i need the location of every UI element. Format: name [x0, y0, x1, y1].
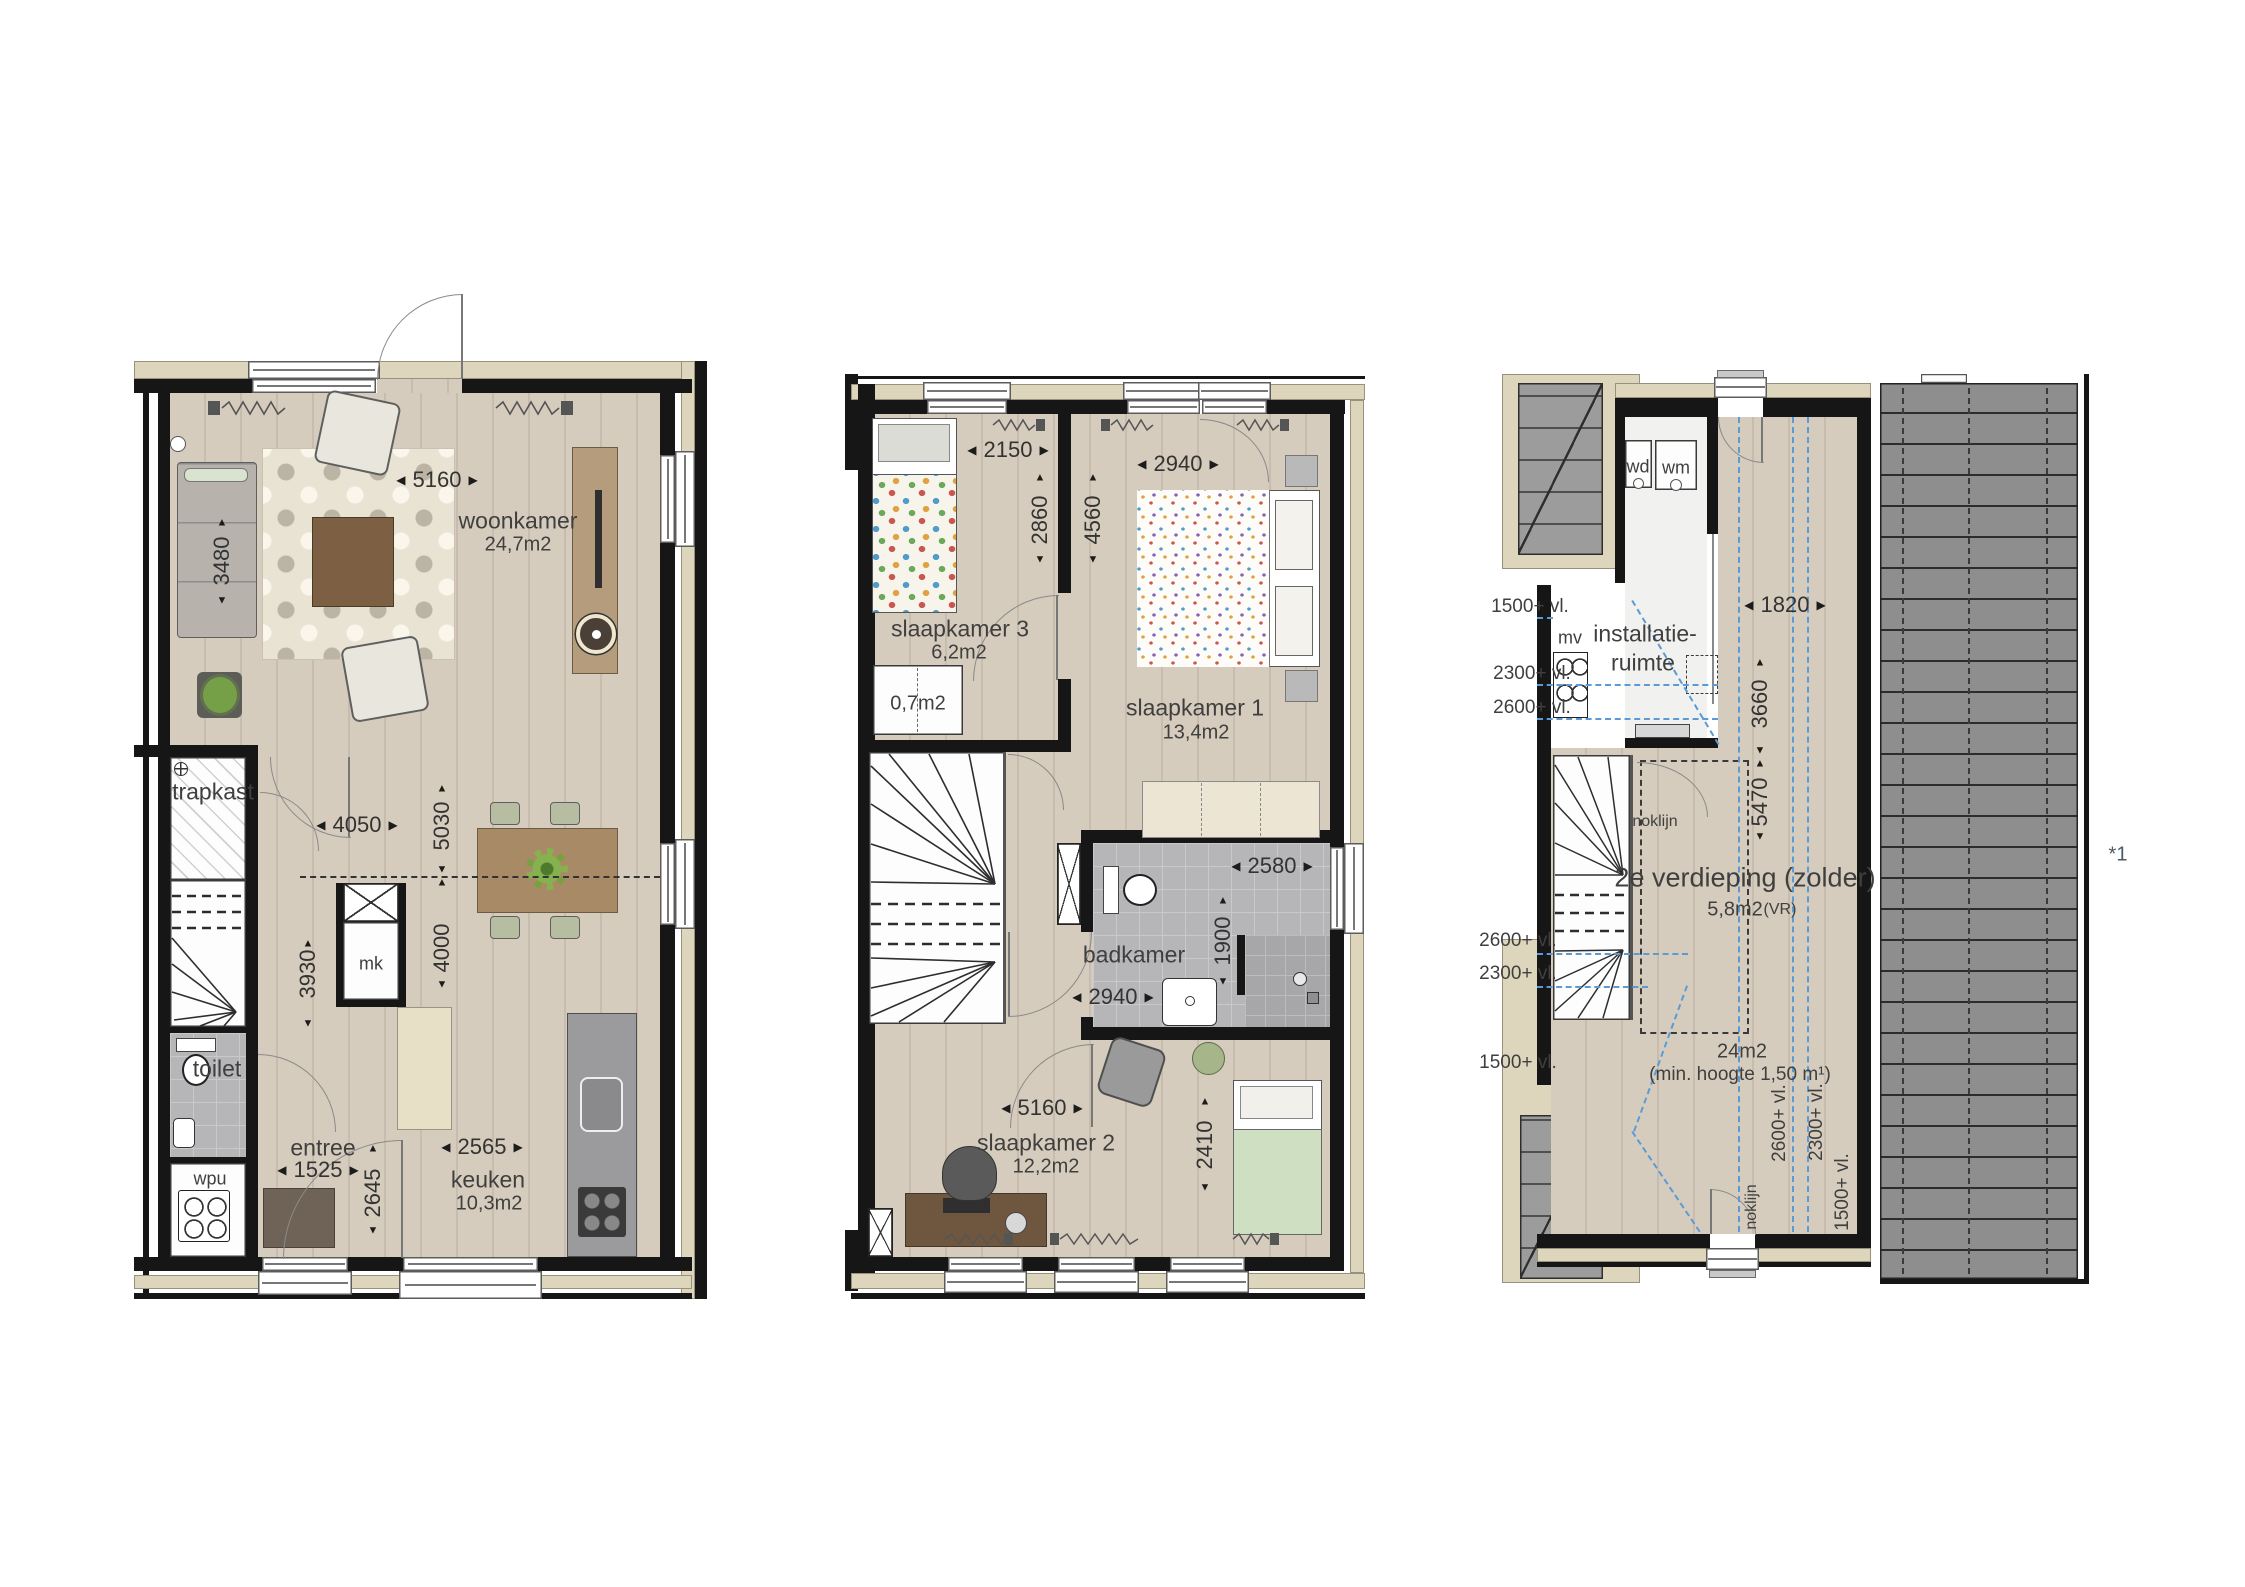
- label-2600-rot: 2600+ vl.: [1769, 1084, 1791, 1162]
- window-top-2: [1127, 400, 1200, 414]
- wall-top-a: [875, 400, 927, 414]
- wall-install-right: [1707, 417, 1718, 534]
- label-trapkast: trapkast: [172, 779, 254, 806]
- party-wall-left: [1537, 585, 1551, 1085]
- radiator-icon: [1101, 418, 1153, 432]
- wall-right-a: [1330, 400, 1344, 847]
- kitchen-sink: [580, 1077, 623, 1132]
- entree-door-bottom: [403, 1257, 538, 1271]
- arrow-down-icon: ▼: [217, 596, 228, 607]
- label-woonkamer-area: 24,7m2: [485, 534, 552, 557]
- wardrobe: [1142, 781, 1320, 838]
- bed-sk3-pillow: [878, 424, 950, 462]
- label-keuken-area: 10,3m2: [456, 1193, 523, 1216]
- tv: [595, 490, 602, 588]
- wall-mk-bottom: [343, 1000, 406, 1007]
- label-wm: wm: [1662, 458, 1690, 479]
- dim-attic-width: ◀1820▶: [1744, 592, 1825, 618]
- nightstand-1: [1285, 455, 1318, 487]
- wall-top-b: [1763, 398, 1871, 417]
- wd-circle: [1633, 478, 1644, 489]
- boiler-outline: [1686, 655, 1718, 694]
- dim-sk1-height: 4560: [1080, 496, 1106, 545]
- label-2300-rot: 2300+ vl.: [1806, 1083, 1828, 1161]
- sk2-door-leaf: [1091, 1044, 1093, 1127]
- outer-line-bottom: [1537, 1262, 1871, 1267]
- washbasin-drain: [1185, 996, 1195, 1006]
- wall-mk-right: [399, 883, 406, 1007]
- wall-sk3-hall: [858, 740, 1071, 752]
- arrow-up-icon: ▲: [1755, 759, 1766, 770]
- bed-sk2-pillow: [1240, 1086, 1313, 1119]
- floorplan-sheet: { "icons": { "arrow_left": "◀", "arrow_r…: [0, 0, 2245, 1587]
- dim-sk3-height: 2860: [1027, 496, 1053, 545]
- radiator-icon: [945, 1232, 1013, 1246]
- label-1500-top: 1500+ vl.: [1491, 596, 1569, 618]
- toilet-cistern: [1103, 866, 1119, 914]
- wall-left: [158, 379, 170, 1271]
- roof-dash-1: [1902, 388, 1904, 1274]
- wall-bottom-b: [1023, 1257, 1058, 1271]
- radiator-icon: [1237, 418, 1289, 432]
- label-zolder: 2e verdieping (zolder): [1614, 863, 1875, 894]
- label-toilet: toilet: [193, 1056, 242, 1083]
- window-bottom-2-frame: [1054, 1271, 1139, 1293]
- window-bottom-3: [1170, 1257, 1245, 1271]
- coffee-table: [312, 517, 394, 607]
- arrow-up-icon: ▲: [217, 518, 228, 529]
- bed-sk2-duvet: [1233, 1129, 1322, 1235]
- kitchen-island: [397, 1007, 452, 1130]
- terrace-door-arc: [377, 294, 463, 380]
- arrow-up-icon: ▲: [437, 784, 448, 795]
- label-keuken: keuken: [451, 1167, 525, 1194]
- window-bottom-1: [262, 1257, 348, 1271]
- label-mk: mk: [359, 954, 383, 975]
- table-plant: [526, 848, 568, 890]
- wall-bottom-c: [1135, 1257, 1170, 1271]
- plan-first-floor: ◀2150▶ ◀2940▶ ◀2580▶ ◀2940▶ ◀5160▶ ▲ 286…: [845, 374, 1405, 1314]
- label-1500-mid: 1500+ vl.: [1479, 1052, 1557, 1074]
- dim-dining-lower: 4000: [429, 924, 455, 973]
- roof-block-top-left: [1518, 383, 1603, 555]
- shower-wall-stub: [1237, 935, 1245, 995]
- arrow-up-icon: ▲: [1200, 1097, 1211, 1108]
- label-noklijn-rot: noklijn: [1743, 1184, 1761, 1229]
- label-wd: wd: [1626, 457, 1649, 478]
- window-top-1-frame: [923, 382, 1011, 400]
- front-door-leaf: [401, 1140, 403, 1258]
- arrow-down-icon: ▼: [1200, 1183, 1211, 1194]
- bed-sk1-pillow-2: [1275, 586, 1313, 656]
- headroom-line-v1: [1738, 417, 1740, 1232]
- wall-bottom-b: [1755, 1234, 1871, 1248]
- outer-line-top: [851, 376, 1365, 379]
- label-floor-area: 24m2: [1717, 1041, 1767, 1064]
- label-entree: entree: [290, 1135, 355, 1162]
- dim-bad-height: 1900: [1210, 917, 1236, 966]
- window-right-1-frame: [675, 451, 695, 547]
- arrow-down-icon: ▼: [437, 865, 448, 876]
- dim-hall-height: 3930: [295, 950, 321, 999]
- radiator-icon: [1050, 1232, 1138, 1246]
- dim-dining-upper: 5030: [429, 802, 455, 851]
- arrow-down-icon: ▼: [437, 980, 448, 991]
- nightstand-2: [1285, 670, 1318, 702]
- dashed-axis-line: [300, 876, 660, 878]
- arrow-up-icon: ▲: [1088, 473, 1099, 484]
- arrow-right-icon: ▶: [468, 473, 477, 487]
- window-right-badkamer-frame: [1344, 843, 1364, 934]
- arrow-up-icon: ▲: [437, 878, 448, 889]
- arrow-up-icon: ▲: [1035, 473, 1046, 484]
- dining-chair-2: [550, 802, 580, 825]
- dim-attic-lower: 5470: [1747, 778, 1773, 827]
- bed-sk3-duvet: [872, 474, 957, 613]
- label-installatie-1: installatie-: [1593, 621, 1697, 648]
- dim-living-width: ◀5160▶: [396, 467, 477, 493]
- arrow-down-icon: ▼: [1035, 555, 1046, 566]
- label-badkamer: badkamer: [1083, 942, 1185, 969]
- label-zolder-area: 5,8m2: [1707, 899, 1763, 922]
- wall-top-a: [1615, 398, 1718, 417]
- shaft-corner: [868, 1208, 893, 1257]
- label-2600-mid: 2600+ vl.: [1479, 930, 1557, 952]
- window-top-3-frame: [1198, 382, 1271, 400]
- armchair-top: [313, 389, 402, 477]
- shower-drain: [1307, 992, 1319, 1004]
- window-top-2-frame: [1123, 382, 1204, 400]
- dim-sk1-width: ◀2940▶: [1137, 451, 1218, 477]
- outer-line-bottom: [851, 1293, 1365, 1299]
- install-device: [1635, 724, 1690, 738]
- dim-bad-width: ◀2580▶: [1231, 853, 1312, 879]
- top-door-leaf: [1761, 417, 1763, 462]
- label-slaapkamer2: slaapkamer 2: [977, 1130, 1115, 1157]
- label-mv: mv: [1558, 628, 1582, 649]
- wall-install-left: [1615, 417, 1625, 583]
- label-slaapkamer3-area: 6,2m2: [931, 642, 987, 665]
- window-bottom-3-frame: [1166, 1271, 1249, 1293]
- wall-bottom-a: [875, 1257, 948, 1271]
- outer-line-right: [2084, 374, 2089, 1284]
- stove: [578, 1187, 626, 1237]
- plant-leaves: [203, 677, 237, 713]
- arrow-down-icon: ▼: [1088, 555, 1099, 566]
- arrow-left-icon: ◀: [396, 473, 405, 487]
- arrow-down-icon: ▼: [1755, 832, 1766, 843]
- plan-ground-floor: ◀5160▶ ◀4050▶ ◀1525▶ ◀2565▶ ▲ 3480 ▼ ▲ 5…: [118, 262, 718, 1312]
- door-gap-top: [377, 379, 462, 393]
- footnote-star1: *1: [2109, 844, 2128, 867]
- label-kast-area: 0,7m2: [890, 693, 946, 716]
- label-woonkamer: woonkamer: [459, 508, 578, 535]
- bottom-door-leaf: [1710, 1189, 1712, 1234]
- label-2600-top: 2600+ vl.: [1493, 697, 1571, 719]
- dining-chair-4: [550, 916, 580, 939]
- dim-kitchen-width: ◀2565▶: [441, 1134, 522, 1160]
- roof-dash-3: [2046, 388, 2048, 1274]
- wall-trapkast-top: [134, 745, 258, 757]
- entree-door-bottom-frame: [399, 1271, 542, 1299]
- label-slaapkamer1-area: 13,4m2: [1163, 722, 1230, 745]
- stool-green: [1192, 1042, 1225, 1075]
- outer-line-right: [695, 361, 707, 1299]
- shaft: [343, 883, 399, 922]
- wpu-unit: [178, 1190, 230, 1242]
- armchair-bottom: [340, 635, 430, 723]
- outer-line-right-bottom: [1880, 1279, 2089, 1284]
- bed-sk1-duvet: [1137, 490, 1270, 667]
- dining-chair-1: [490, 802, 520, 825]
- label-slaapkamer2-area: 12,2m2: [1013, 1156, 1080, 1179]
- shower-head: [1293, 972, 1307, 986]
- arrow-down-icon: ▼: [1755, 746, 1766, 757]
- arrow-up-icon: ▲: [1755, 658, 1766, 669]
- window-top-3: [1202, 400, 1267, 414]
- wardrobe-div-2: [1260, 783, 1261, 836]
- window-top: [252, 379, 376, 393]
- wall-right: [1857, 398, 1871, 1248]
- desk-lamp: [1005, 1212, 1027, 1234]
- wall-bottom-d: [1245, 1257, 1330, 1271]
- wall-install-bottom: [1625, 738, 1718, 748]
- wall-lamp-icon: [170, 436, 186, 452]
- window-bottom-1-frame: [944, 1271, 1027, 1293]
- window-right-2-frame: [675, 839, 695, 929]
- spiral-stairs-icon: [869, 752, 1005, 1024]
- spiral-stairs-icon: [170, 880, 246, 1027]
- wall-sk3-sk1-top: [1058, 414, 1071, 593]
- label-floor-note: (min. hoogte 1,50 m¹): [1649, 1064, 1831, 1086]
- sk3-door-leaf: [1056, 595, 1058, 680]
- top-door-sill: [1717, 370, 1764, 378]
- toilet-sink: [173, 1118, 195, 1148]
- shaft: [1057, 843, 1081, 925]
- wall-badkamer-left-a: [1081, 843, 1093, 932]
- wardrobe-div-1: [1201, 783, 1202, 836]
- side-table-dot: [592, 630, 601, 639]
- arrow-up-icon: ▲: [1218, 896, 1229, 907]
- dim-sofa-wall: 3480: [209, 537, 235, 586]
- dim-hall-width: ◀4050▶: [316, 812, 397, 838]
- radiator-icon: [1233, 1232, 1279, 1246]
- bottom-door-sill: [1709, 1270, 1756, 1278]
- label-zolder-vr: (VR): [1764, 901, 1797, 919]
- cream-band-right: [1350, 400, 1364, 1273]
- wall-mk-left: [336, 883, 343, 1007]
- terrace-door-leaf: [461, 294, 463, 379]
- wall-column-right: [246, 757, 258, 1257]
- label-2300-top: 2300+ vl.: [1493, 663, 1571, 685]
- label-1500-rot: 1500+ vl.: [1832, 1153, 1854, 1231]
- arrow-down-icon: ▼: [368, 1226, 379, 1237]
- outer-line-left: [143, 361, 149, 1299]
- wall-right-b: [1330, 930, 1344, 1271]
- window-top-frame: [248, 361, 380, 379]
- window-right-2: [660, 843, 675, 925]
- toilet-bowl: [1123, 874, 1157, 906]
- dim-sk2-height: 2410: [1192, 1121, 1218, 1170]
- cream-band-bottom: [1537, 1248, 1871, 1262]
- dim-sk3-width: ◀2150▶: [967, 437, 1048, 463]
- badkamer-door-leaf: [1008, 932, 1010, 1016]
- arrow-down-icon: ▼: [1218, 977, 1229, 988]
- bed-sk1-pillow-1: [1275, 500, 1313, 570]
- label-slaapkamer1: slaapkamer 1: [1126, 695, 1264, 722]
- dim-attic-upper: 3660: [1747, 680, 1773, 729]
- arrow-down-icon: ▼: [303, 1019, 314, 1030]
- label-noklijn-h: noklijn: [1632, 813, 1677, 831]
- wm-circle: [1670, 479, 1682, 491]
- wall-bottom-a: [1537, 1234, 1710, 1248]
- arrow-up-icon: ▲: [368, 1144, 379, 1155]
- level-line-2300-mid: [1537, 986, 1648, 988]
- dining-chair-3: [490, 916, 520, 939]
- roof-dash-2: [1968, 388, 1970, 1274]
- survey-cross-icon: [174, 762, 188, 776]
- dim-sk2-width: ◀5160▶: [1001, 1095, 1082, 1121]
- toilet-cistern: [176, 1038, 216, 1052]
- plan-attic: ◀1820▶ ▲ 3660 ▼ ▲ 5470 ▼ wd wm 1500+ vl.…: [1490, 374, 2230, 1314]
- label-slaapkamer3: slaapkamer 3: [891, 616, 1029, 643]
- roof-strip-right: [1880, 383, 2078, 1279]
- dim-bad-width2: ◀2940▶: [1072, 984, 1153, 1010]
- shower-floor: [1245, 935, 1330, 1027]
- window-bottom-1: [948, 1257, 1023, 1271]
- bottom-door-frame: [1706, 1248, 1759, 1270]
- arrow-up-icon: ▲: [303, 939, 314, 950]
- radiator-icon: [496, 400, 574, 416]
- headroom-line-v2: [1792, 417, 1794, 1232]
- window-top-1: [927, 400, 1007, 414]
- label-2300-mid: 2300+ vl.: [1479, 963, 1557, 985]
- radiator-icon: [208, 400, 286, 416]
- label-installatie-2: ruimte: [1611, 650, 1675, 677]
- radiator-icon: [993, 418, 1045, 432]
- window-right-1: [660, 455, 675, 543]
- level-line-2600-mid: [1537, 953, 1688, 955]
- sofa-pillow: [184, 468, 248, 482]
- wall-top-left: [134, 379, 252, 393]
- window-right-badkamer: [1330, 847, 1344, 930]
- dim-entree-height: 2645: [360, 1169, 386, 1218]
- label-wpu: wpu: [193, 1169, 226, 1190]
- wall-top-b: [1007, 400, 1127, 414]
- wall-top-right: [462, 379, 692, 393]
- top-door-frame: [1714, 377, 1767, 398]
- roof-notch: [1921, 374, 1967, 383]
- window-bottom-1-frame: [258, 1271, 352, 1295]
- window-bottom-2: [1058, 1257, 1135, 1271]
